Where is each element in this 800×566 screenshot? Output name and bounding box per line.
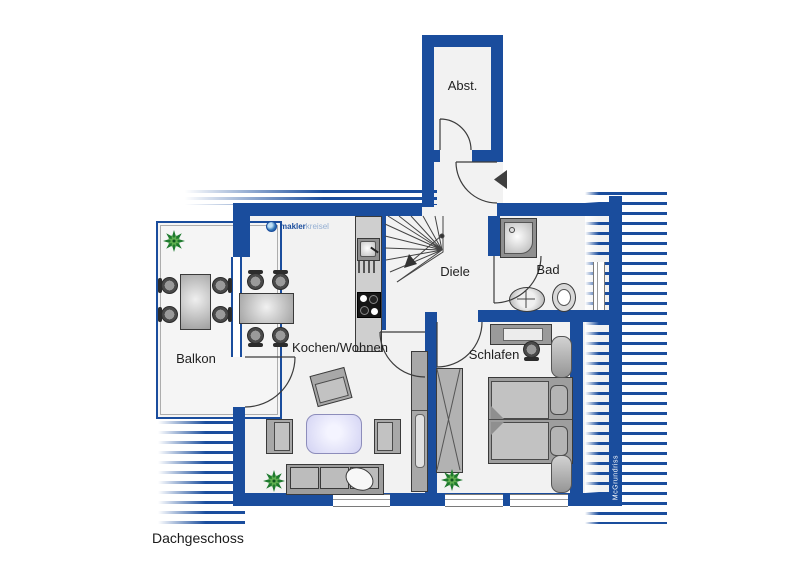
window-bad [593,262,605,310]
dining-chair [247,273,264,290]
kitchen-counter [355,216,382,352]
bedside-bench-bottom [551,455,572,493]
pillow-bottom [550,426,568,456]
room-label-balkon: Balkon [164,351,228,366]
dining-table [239,293,294,324]
floor-title: Dachgeschoss [152,530,244,546]
toilet [552,283,576,312]
floorplan-canvas: McGrundriss [0,0,800,566]
dining-chair [272,327,289,344]
roof-hatch-below-balcony-fade [158,421,245,527]
dining-chair [247,327,264,344]
wardrobe [436,368,463,473]
balcony-chair [212,306,229,323]
abst-floor [434,47,491,207]
room-label-diele: Diele [430,264,480,279]
rug [306,414,362,454]
armchair-right [374,419,401,454]
bad-left-wall [488,216,500,256]
dresser [490,324,552,345]
window-living [333,494,390,507]
tv-sideboard [411,351,428,492]
entry-floor [491,162,503,207]
mattress-top [491,381,549,419]
bedside-bench-top [551,336,572,378]
bathroom-sink [509,287,545,312]
window-center [445,494,503,507]
top-wall-left [233,203,422,216]
window-schlafen [510,494,568,507]
room-label-schlafen: Schlafen [452,347,536,362]
left-wall-bottom [233,407,245,506]
shower-drain [509,227,515,233]
balcony-table [180,274,211,330]
abst-right-wall [491,35,503,162]
bad-schlafen-wall [478,310,609,322]
room-label-kochen-wohnen: Kochen/Wohnen [288,340,392,355]
balcony-chair [212,277,229,294]
room-label-bad: Bad [526,262,570,277]
kitchen-stove [357,292,381,318]
abst-left-wall [422,35,434,207]
abst-bottom-wall-left [422,150,440,162]
kitchen-drainer [358,261,377,273]
eaves-strip: McGrundriss [609,196,622,506]
armchair-left [266,419,293,454]
sofa [286,464,384,495]
maklerkreisel-logo-icon [266,221,277,232]
shower [500,218,537,258]
kitchen-sink [357,238,380,261]
dining-chair [272,273,289,290]
abst-bottom-wall-right [472,150,503,162]
top-wall-right [497,203,609,216]
mattress-bottom [491,422,549,460]
double-bed [488,377,573,464]
balcony-chair [161,277,178,294]
balcony-chair [161,306,178,323]
maklerkreisel-logo: maklerkreisel [266,221,329,232]
pillow-top [550,385,568,415]
room-label-abst: Abst. [437,78,488,93]
logo-text-bold: makler [280,222,306,231]
left-wall-top [233,203,250,257]
logo-text-light: kreisel [306,222,329,231]
watermark-text: McGrundriss [612,455,619,500]
